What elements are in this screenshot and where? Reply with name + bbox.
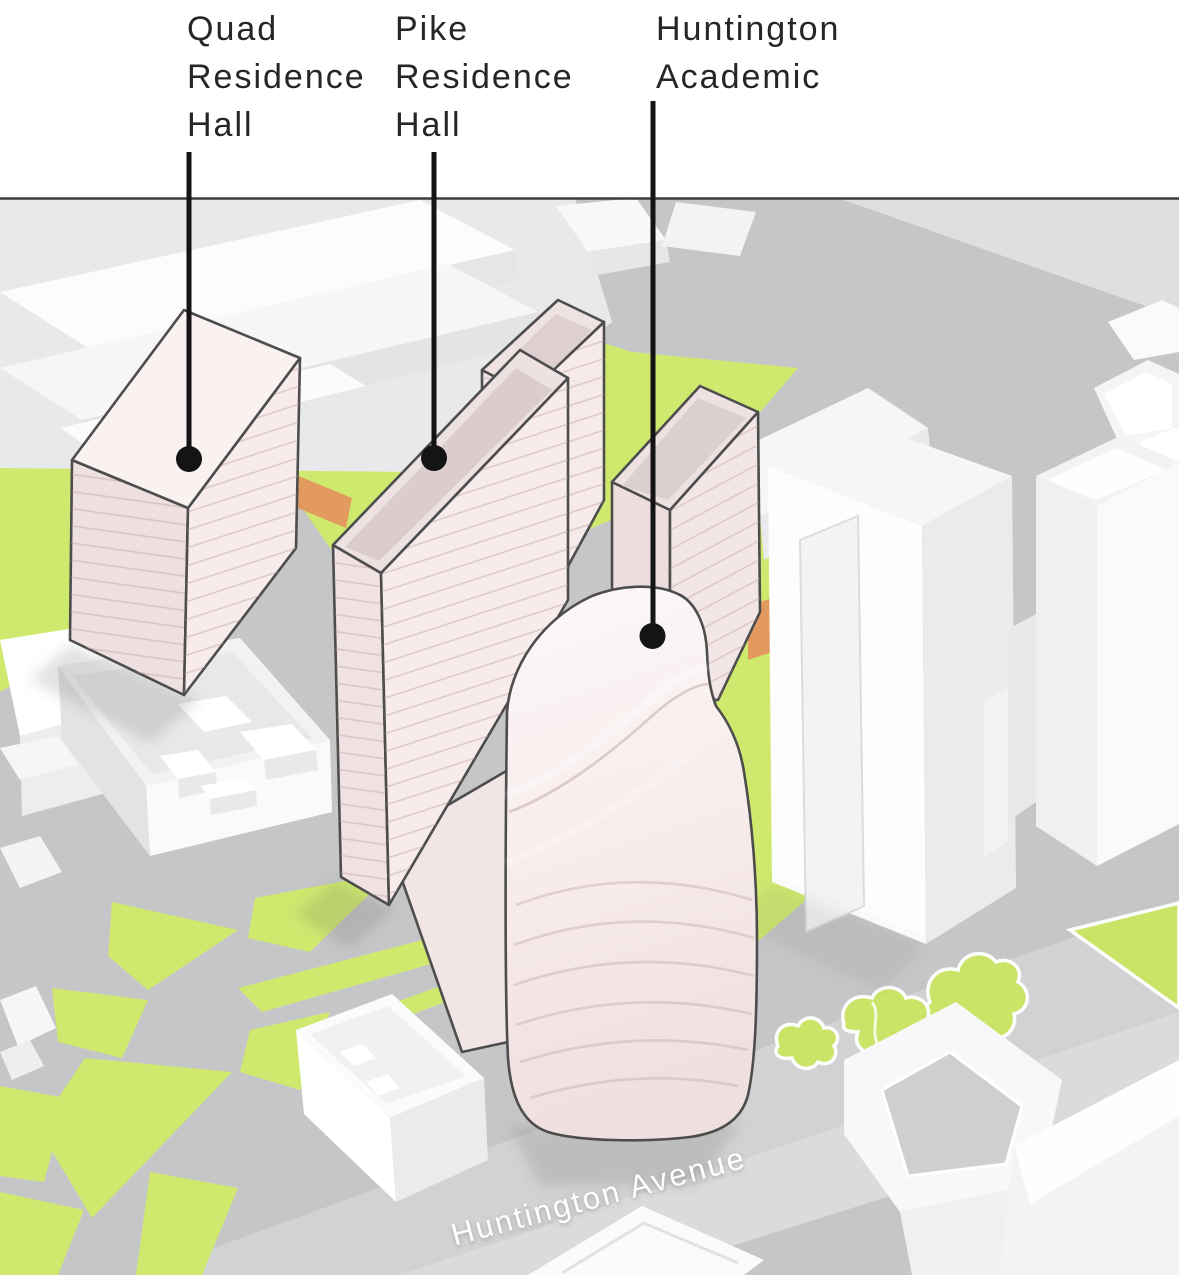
campus-massing-diagram: Quad Residence Hall Pike Residence Hall … <box>0 0 1179 1275</box>
callout-dot-huntington <box>640 623 666 649</box>
header-band <box>0 0 1179 199</box>
callout-label-huntington-academic: Huntington Academic <box>656 5 840 101</box>
scene-3d-render <box>0 0 1179 1275</box>
callout-label-pike-residence-hall: Pike Residence Hall <box>395 5 574 149</box>
callout-dot-quad <box>176 446 202 472</box>
callout-dot-pike <box>421 445 447 471</box>
callout-label-quad-residence-hall: Quad Residence Hall <box>187 5 366 149</box>
